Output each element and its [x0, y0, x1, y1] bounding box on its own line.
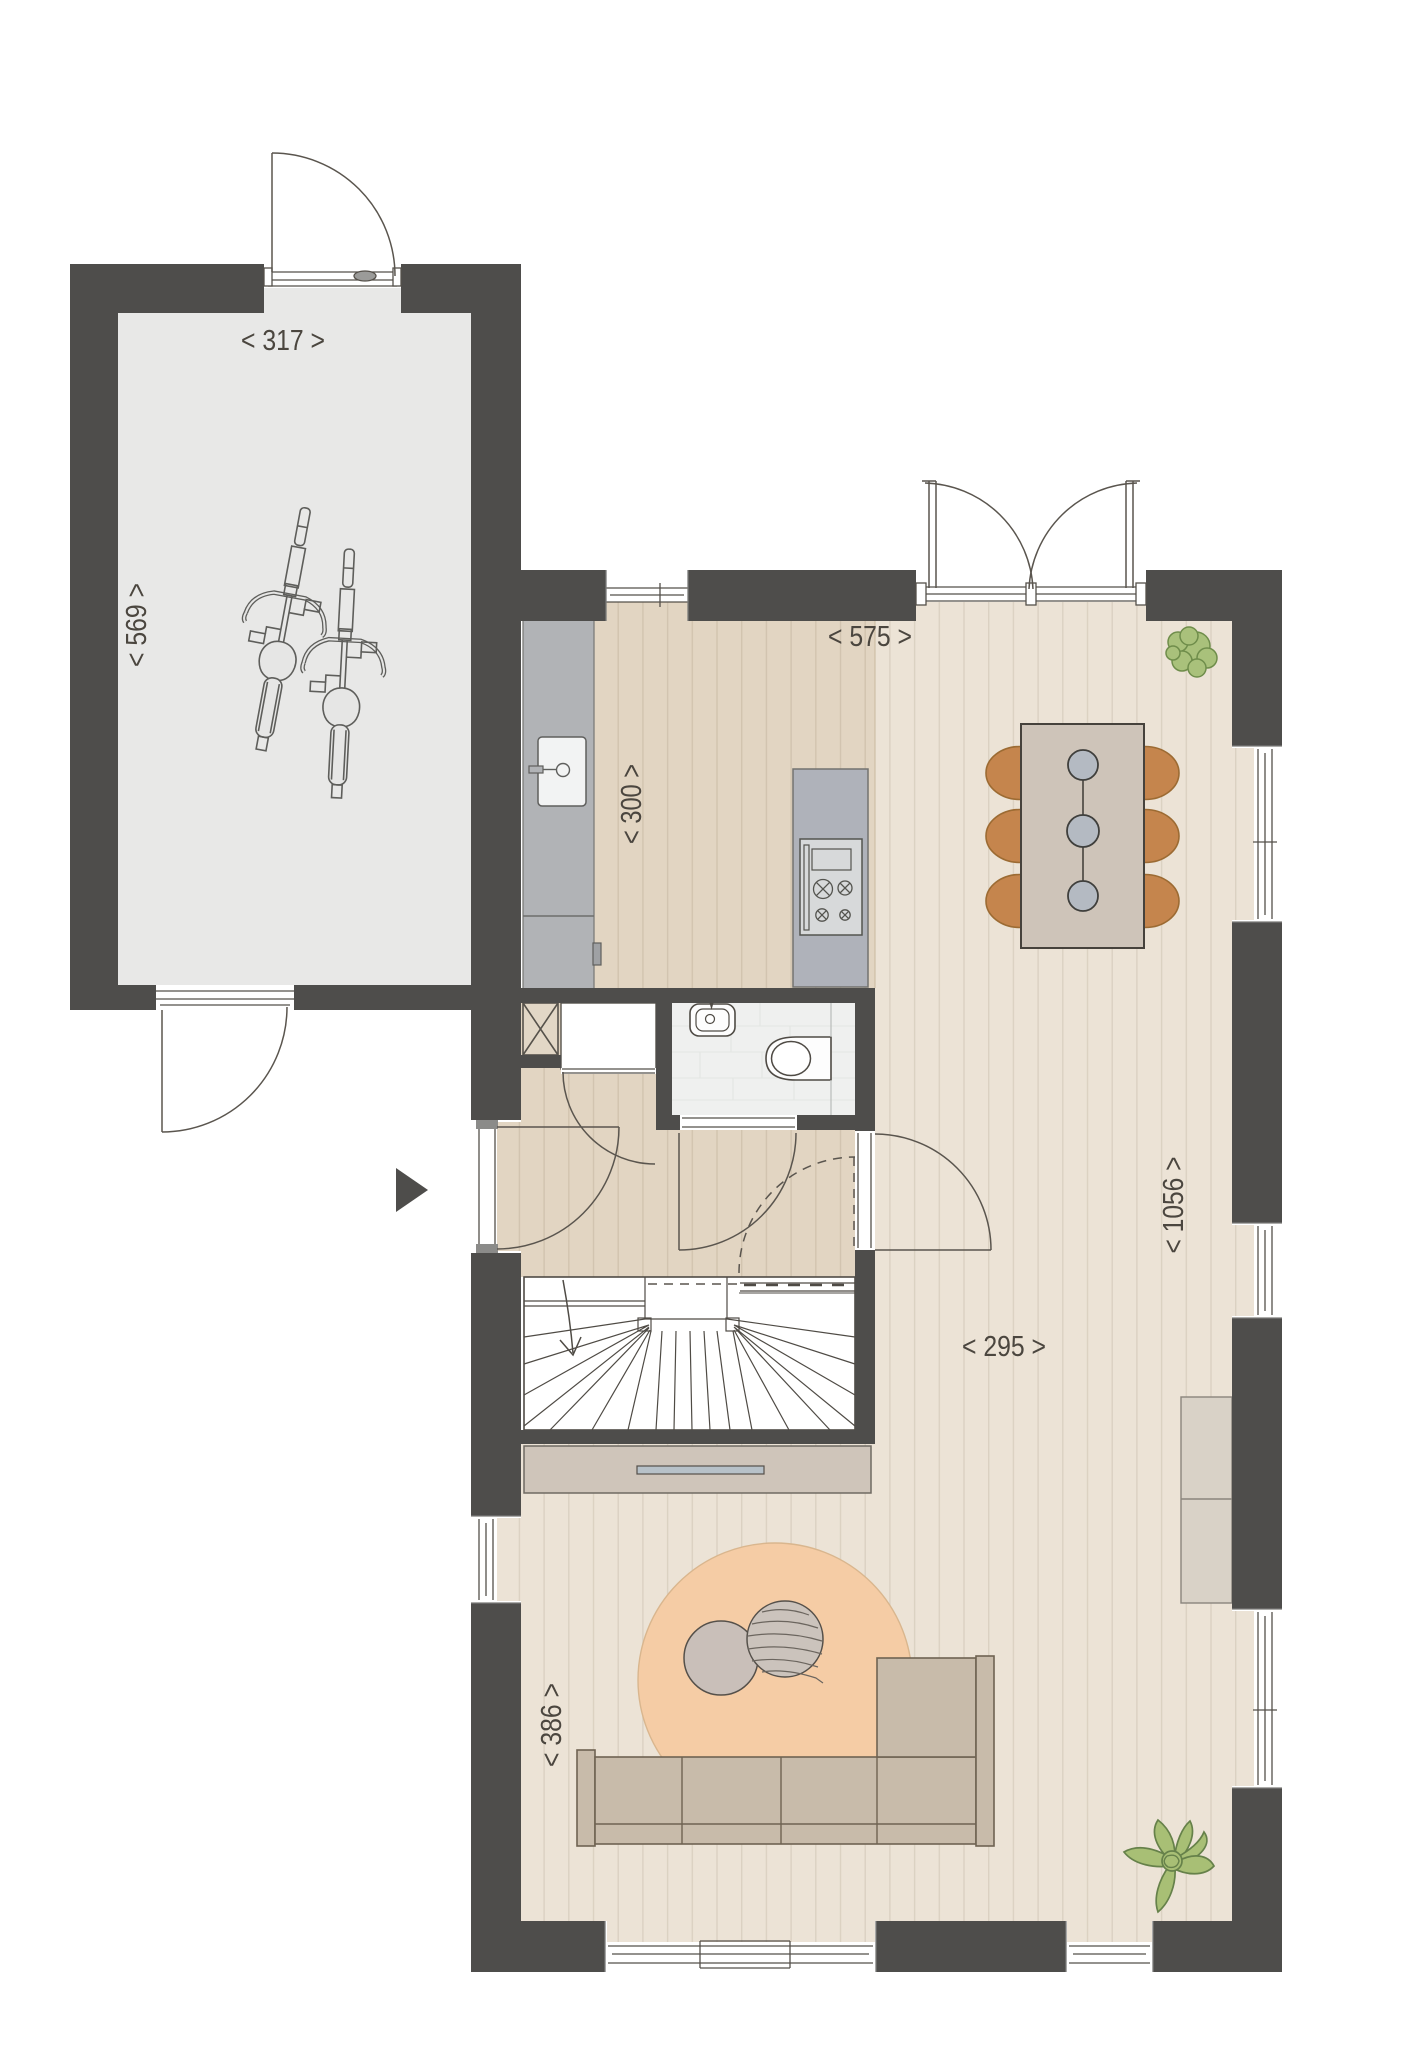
svg-text:< 1056 >: < 1056 > [1158, 1157, 1190, 1254]
svg-text:< 300 >: < 300 > [616, 764, 648, 844]
svg-text:< 575 >: < 575 > [828, 621, 912, 653]
svg-text:< 569 >: < 569 > [121, 583, 153, 667]
svg-text:< 295 >: < 295 > [962, 1331, 1046, 1363]
svg-text:< 386 >: < 386 > [536, 1683, 568, 1767]
svg-text:< 317 >: < 317 > [241, 325, 325, 357]
